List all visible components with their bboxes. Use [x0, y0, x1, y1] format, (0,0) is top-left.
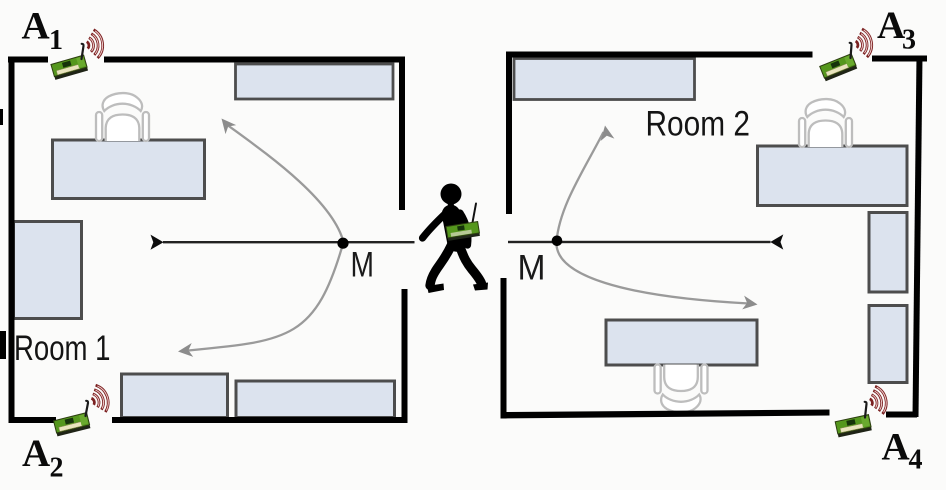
svg-text:A: A: [22, 432, 50, 475]
svg-text:A: A: [882, 426, 910, 469]
svg-text:M: M: [351, 245, 375, 285]
svg-text:4: 4: [909, 445, 923, 476]
svg-text:A: A: [22, 5, 50, 48]
svg-text:A: A: [877, 4, 905, 47]
svg-text:1: 1: [49, 25, 63, 56]
svg-text:Room 2: Room 2: [646, 105, 751, 144]
svg-text:M: M: [518, 248, 546, 288]
svg-text:Room 1: Room 1: [14, 329, 111, 368]
svg-text:2: 2: [50, 453, 64, 484]
svg-text:3: 3: [902, 25, 916, 56]
